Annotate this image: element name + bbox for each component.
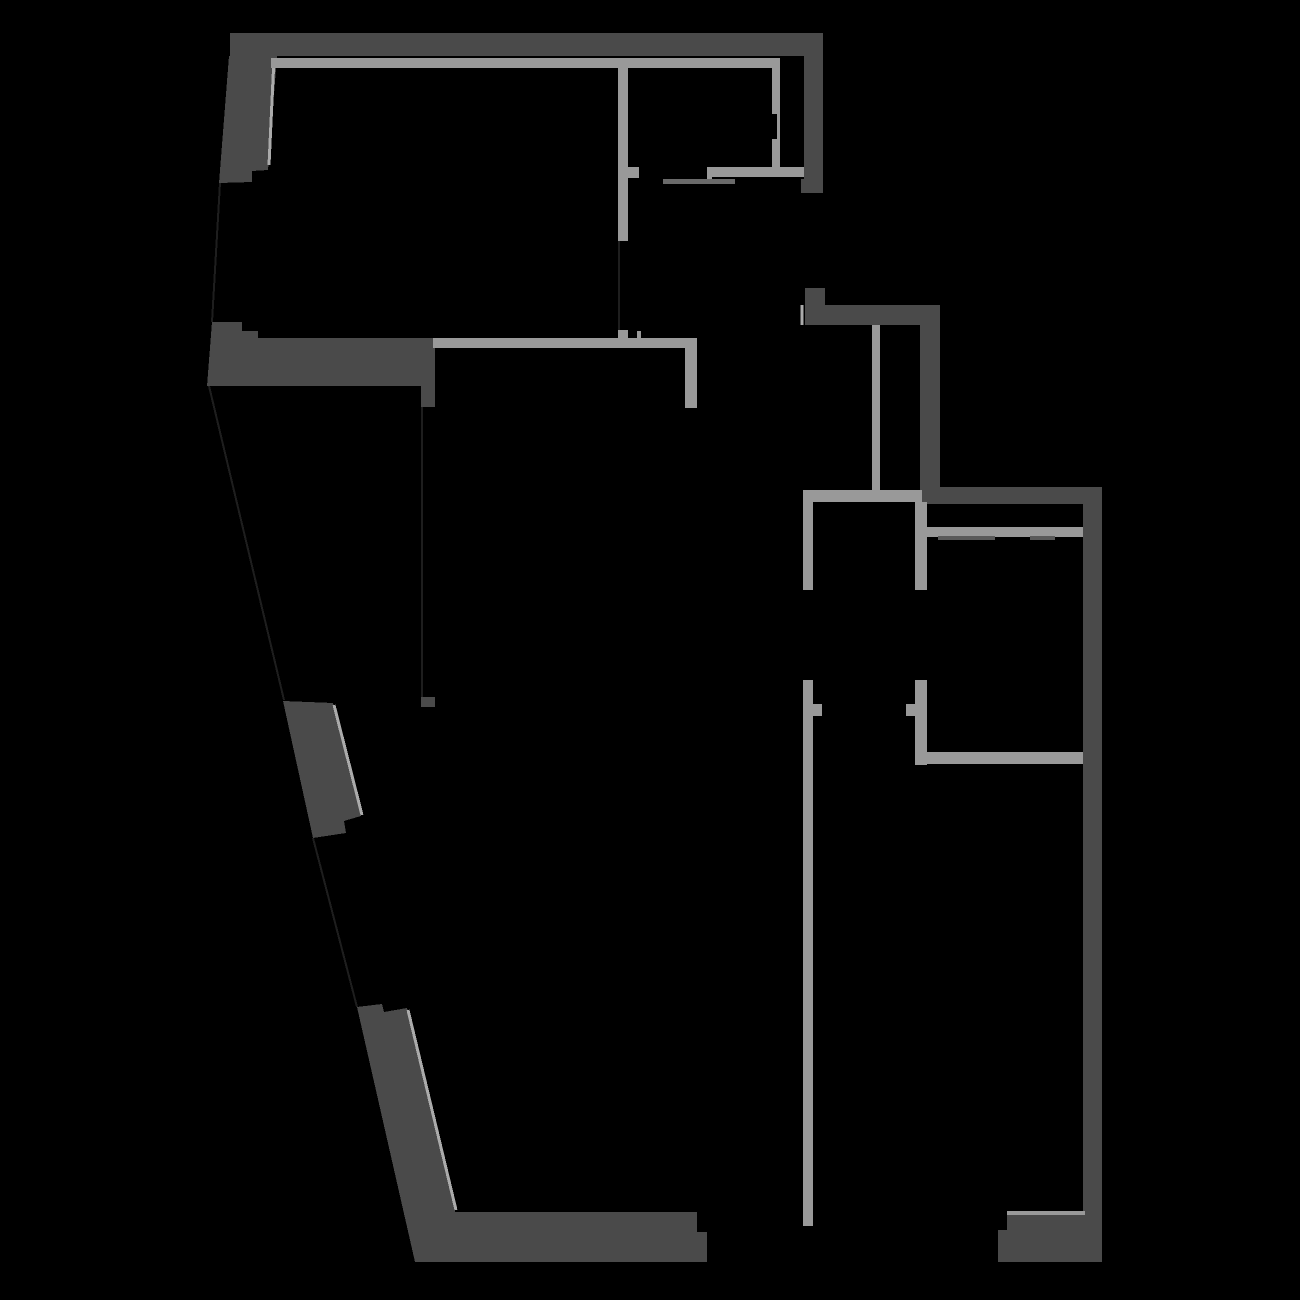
corridor-left-door-tick [813,704,822,716]
window-opening-outline-2 [209,386,284,700]
room1-right-wall-notch [772,114,777,139]
interior-wall-mid-band-tick-b [637,331,641,338]
exterior-wall-top-right [801,56,823,193]
bedroom-bottom-wall [921,752,1083,764]
corridor-right-door-tick [906,704,915,716]
corridor-left-wall-lower [803,680,813,1226]
bedroom-top-wall [920,527,1083,537]
corridor-right-wall-upper [915,502,927,590]
exterior-wall-right-main [920,487,1102,1262]
floor-plan-canvas [0,0,1300,1300]
corridor-left-wall-upper [803,502,813,590]
interior-wall-mid-band [433,338,697,348]
floor-plan [0,0,1300,1300]
shaft-divider-wall [872,325,880,490]
room1-left-wall-tick [628,167,639,178]
wall-stub-lower [421,697,435,707]
exterior-wall-top-band [230,33,823,56]
room1-right-wall [772,58,780,167]
exterior-wall-mid-left-band [207,322,435,407]
window-opening-outline-1 [212,183,220,322]
interior-wall-under-top-band [271,58,778,68]
interior-wall-mid-band-tick-a [618,330,628,338]
exterior-wall-bottom-left-band [357,1004,707,1262]
hall-top-wall [803,490,922,502]
wardrobe-line-1 [938,536,995,540]
door-leaf-room1 [663,179,735,184]
bottom-band-top-edge [1007,1211,1085,1215]
interior-wall-mid-vertical [685,348,697,408]
window-opening-outline-3 [313,838,357,1007]
room1-left-wall [618,58,628,241]
wardrobe-line-2 [1030,536,1055,540]
room1-bottom-wall [707,167,804,177]
